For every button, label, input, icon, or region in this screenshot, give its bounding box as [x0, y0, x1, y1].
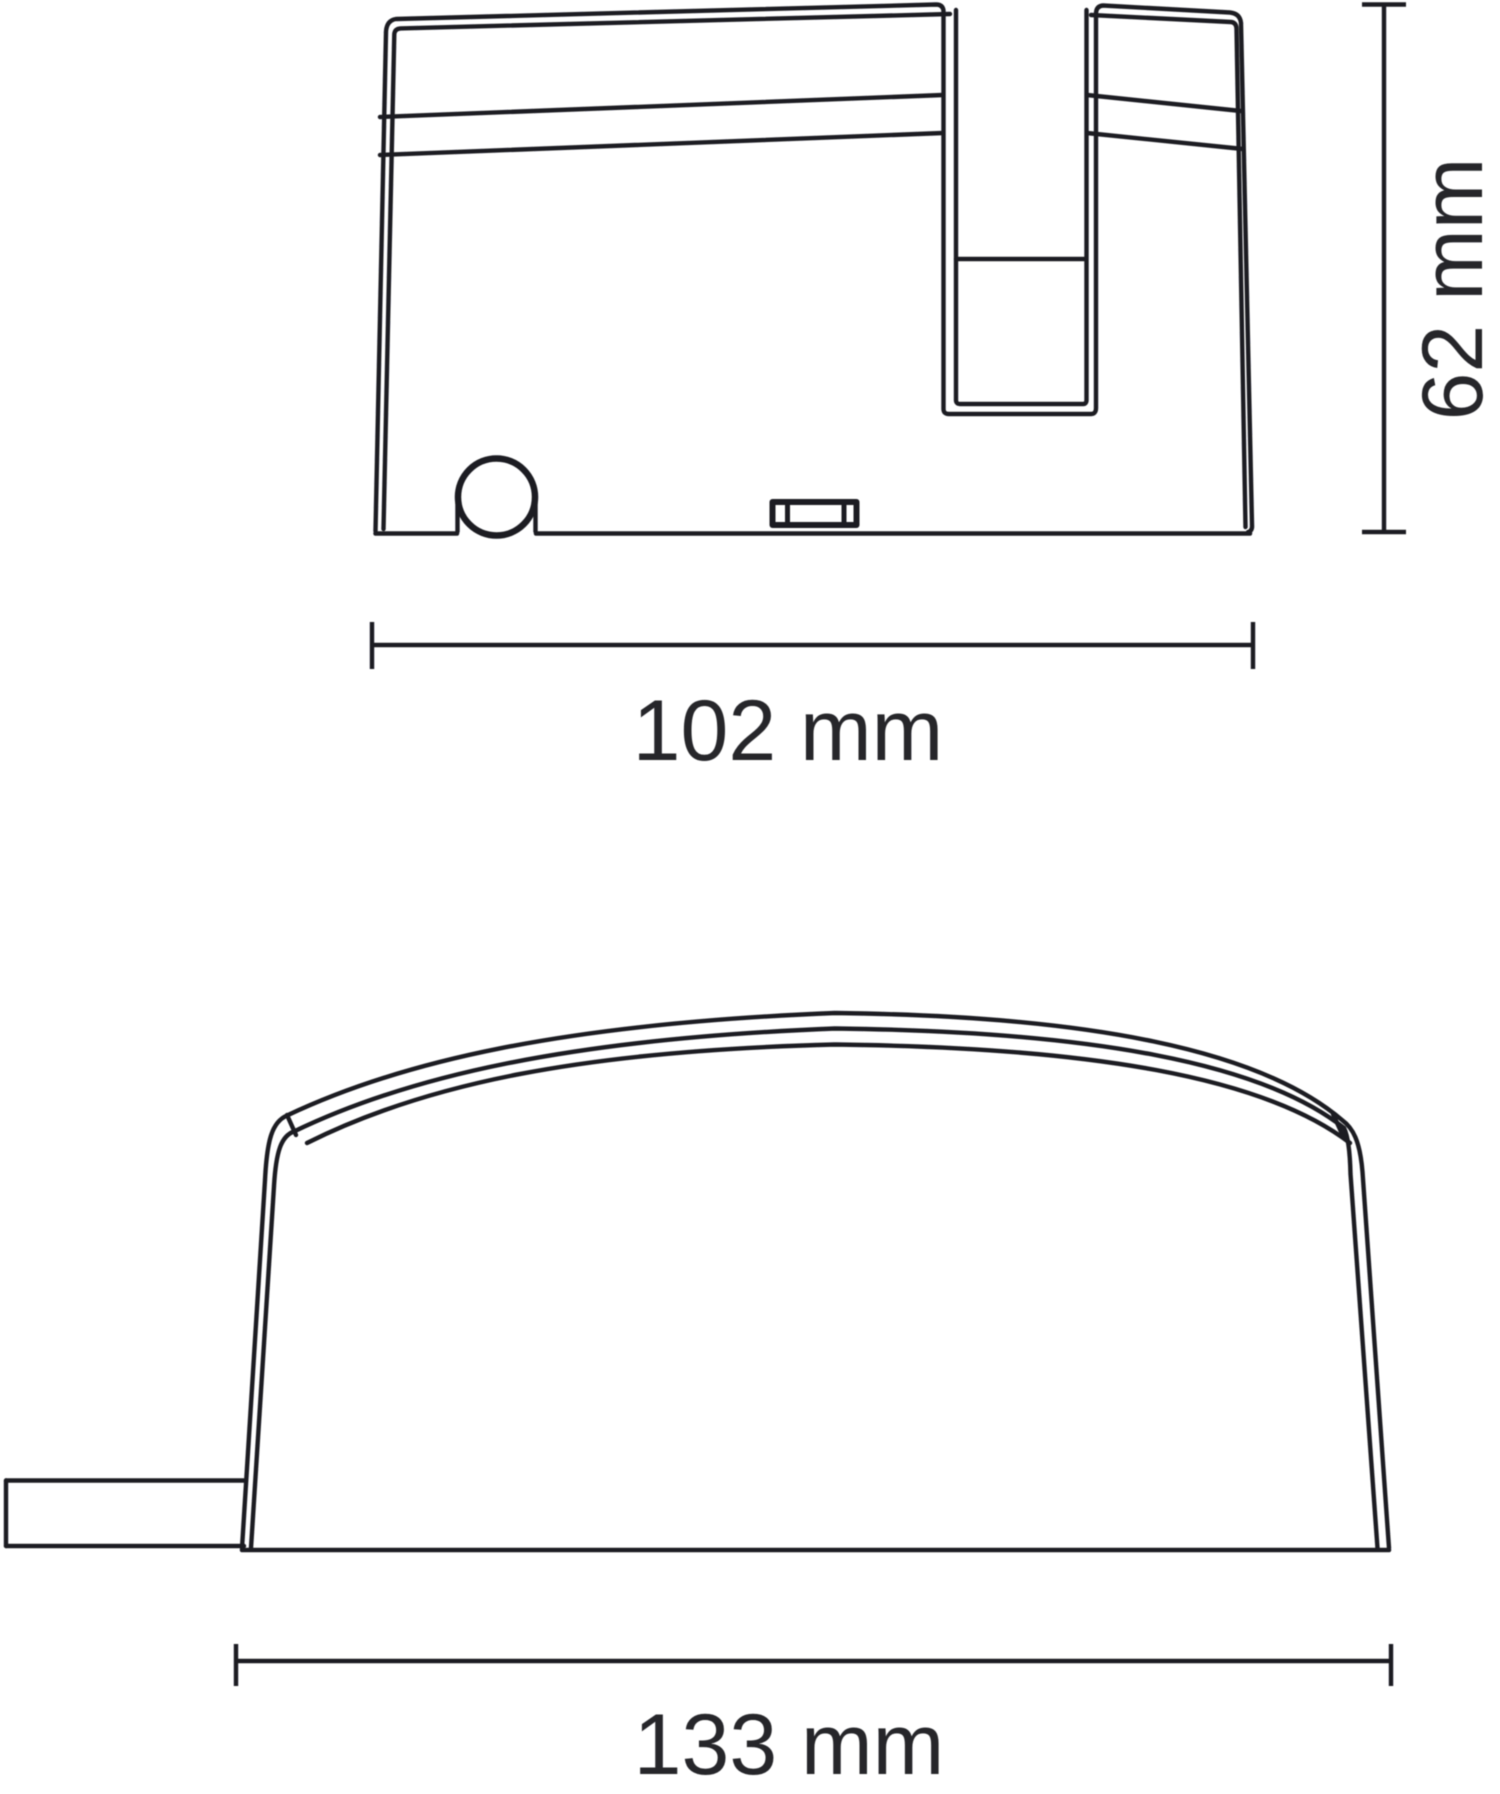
svg-text:133 mm: 133 mm [634, 1697, 945, 1793]
svg-text:102 mm: 102 mm [633, 683, 944, 779]
svg-text:62 mm: 62 mm [1405, 158, 1500, 421]
